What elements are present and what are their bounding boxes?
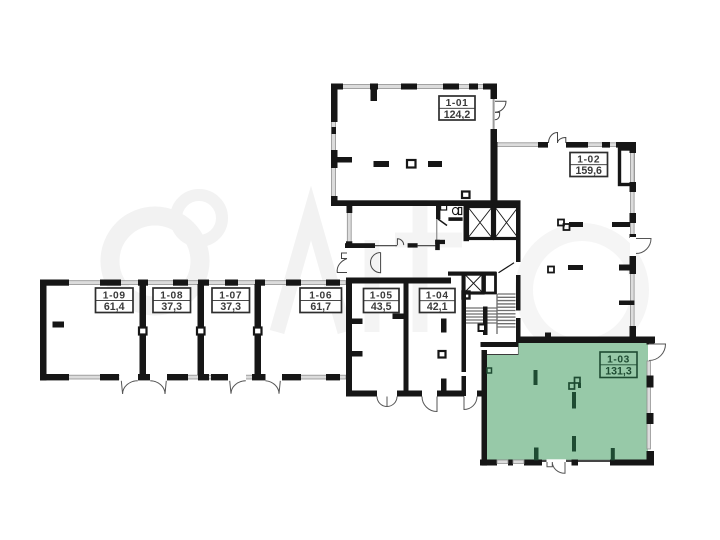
svg-text:159,6: 159,6 [575, 165, 602, 177]
svg-text:61,7: 61,7 [310, 301, 331, 313]
svg-text:1-06: 1-06 [309, 290, 332, 301]
svg-text:1-03: 1-03 [607, 355, 630, 366]
svg-text:42,1: 42,1 [427, 301, 448, 313]
svg-text:61,4: 61,4 [104, 301, 125, 313]
svg-text:131,3: 131,3 [605, 366, 632, 378]
svg-text:37,3: 37,3 [220, 301, 241, 313]
svg-text:1-05: 1-05 [370, 291, 393, 302]
svg-text:1-02: 1-02 [577, 155, 600, 166]
svg-text:37,3: 37,3 [161, 301, 182, 313]
svg-text:1-08: 1-08 [160, 290, 183, 301]
svg-text:1-07: 1-07 [219, 290, 242, 301]
svg-text:124,2: 124,2 [444, 109, 471, 121]
svg-text:1-09: 1-09 [103, 290, 126, 301]
svg-text:1-01: 1-01 [446, 98, 469, 109]
svg-text:43,5: 43,5 [371, 301, 392, 313]
svg-text:1-04: 1-04 [426, 291, 449, 302]
